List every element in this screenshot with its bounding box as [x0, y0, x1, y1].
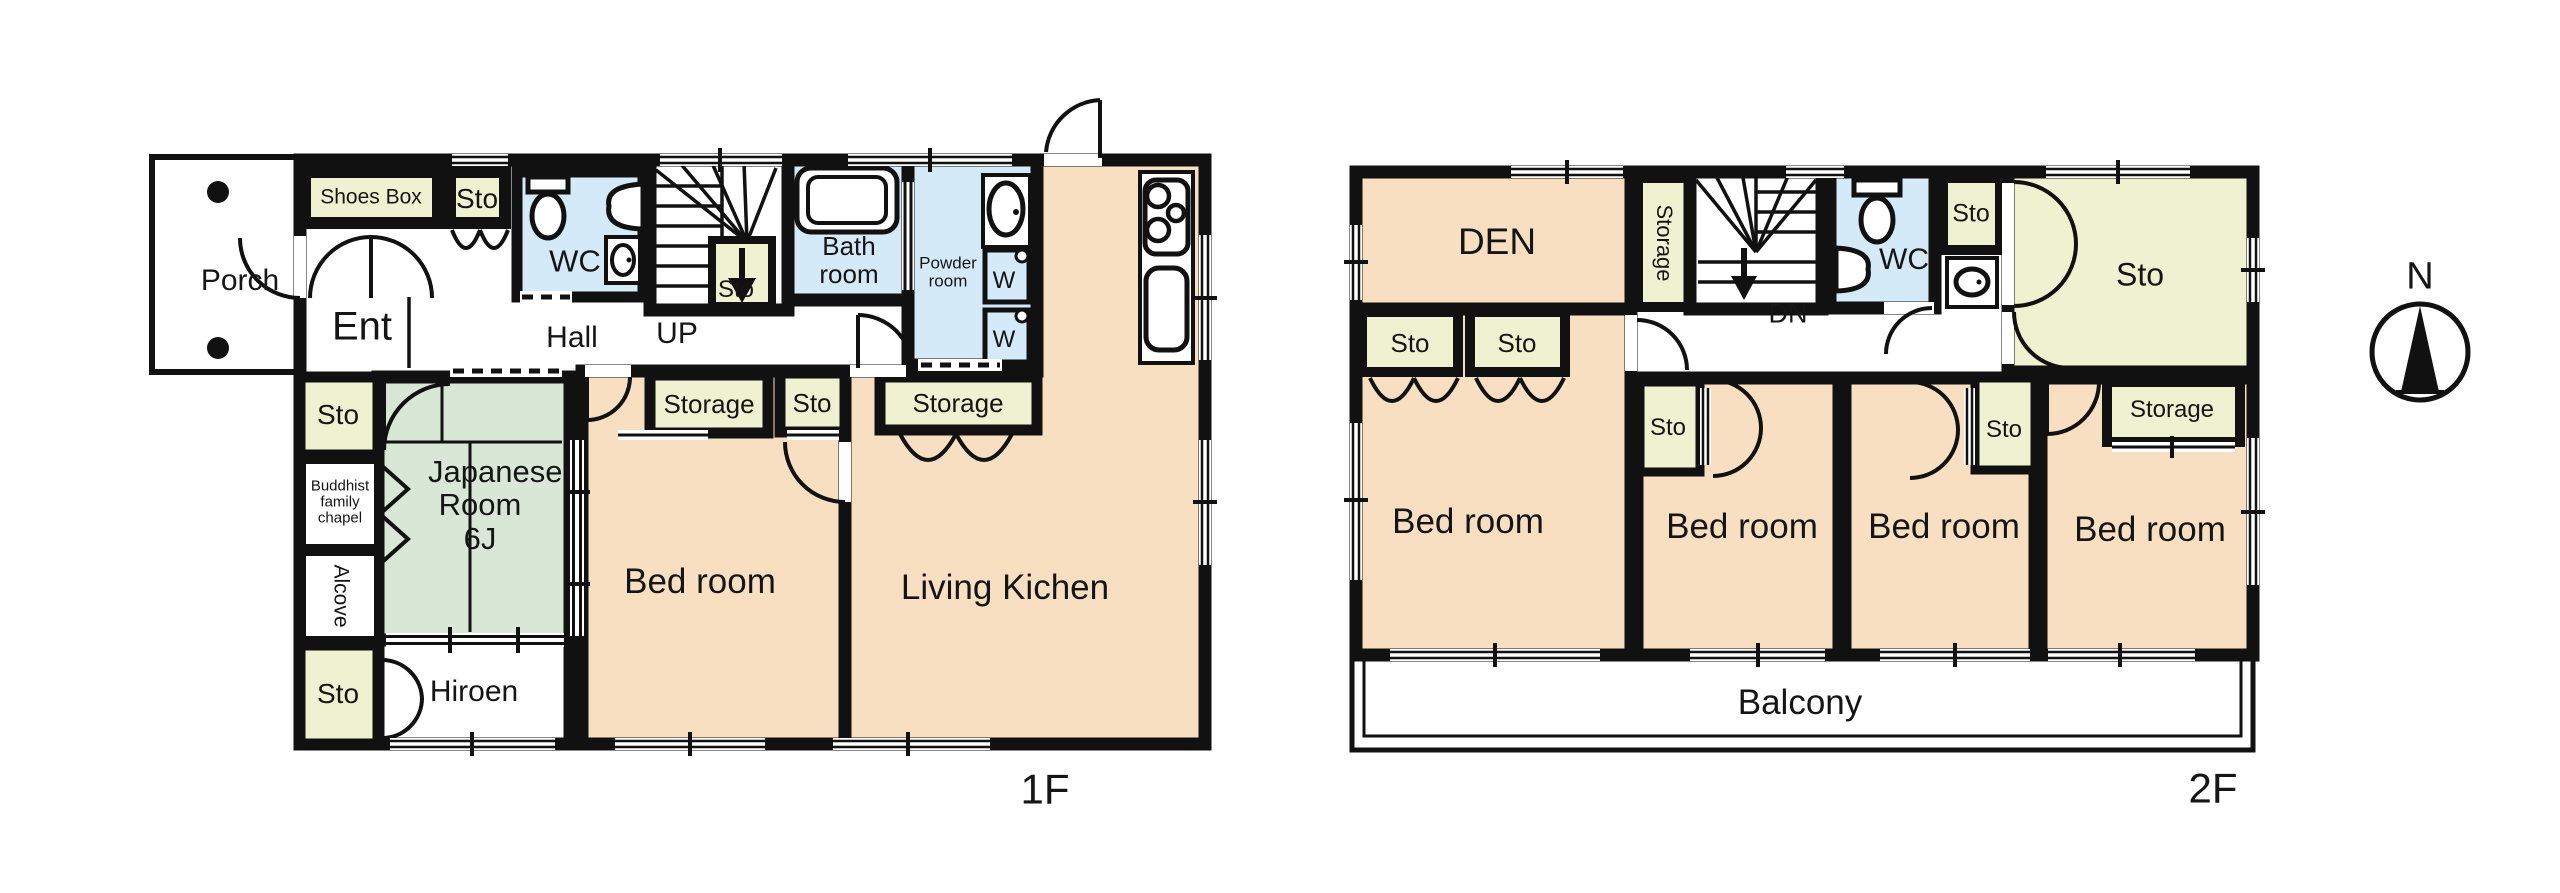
- label-chapel: Buddhist family chapel: [304, 479, 376, 528]
- label-den: DEN: [1458, 222, 1536, 262]
- label-storage-stairs: Storage: [1652, 204, 1676, 281]
- label-porch: Porch: [201, 265, 279, 297]
- label-bed3: Bed room: [1868, 508, 2020, 546]
- kitchen-sink-icon: [1146, 268, 1187, 350]
- label-hiroen: Hiroen: [430, 676, 518, 708]
- label-floor-2f: 2F: [2188, 765, 2237, 810]
- label-sto-den-2: Sto: [1497, 329, 1536, 357]
- label-balcony: Balcony: [1738, 684, 1863, 722]
- label-bed2: Bed room: [1666, 508, 1818, 546]
- label-alcove: Alcove: [329, 564, 352, 627]
- label-dn: DN: [1769, 299, 1808, 328]
- label-sto-bed3: Sto: [1986, 417, 2022, 443]
- label-compass-north: N: [2406, 256, 2433, 297]
- porch-post-dot: [207, 337, 229, 359]
- label-wc-2f: WC: [1879, 244, 1929, 276]
- label-sto-bed: Sto: [792, 389, 831, 417]
- powder-sink-icon: [983, 175, 1030, 247]
- label-sto-wc: Sto: [1952, 201, 1990, 228]
- label-bed4: Bed room: [2074, 511, 2226, 549]
- floorplan-page: Porch Shoes Box Sto Ent WC Hall UP Sto B…: [0, 0, 2560, 893]
- label-ent: Ent: [332, 305, 392, 348]
- label-sto-bed2: Sto: [1650, 415, 1686, 441]
- label-storage-living: Storage: [912, 389, 1003, 417]
- floorplan-drawing: [0, 0, 2560, 893]
- bathtub-icon: [797, 168, 897, 232]
- toilet-icon: [528, 177, 568, 238]
- label-washer-bottom: W: [993, 327, 1016, 353]
- label-japanese-room: Japanese Room 6J: [428, 455, 532, 555]
- label-sto-den-1: Sto: [1390, 329, 1429, 357]
- label-sto-chapel: Sto: [317, 400, 359, 430]
- label-hall: Hall: [546, 322, 598, 354]
- compass: [2372, 304, 2468, 400]
- label-sto-big: Sto: [2116, 258, 2164, 293]
- floor1-plan: [152, 100, 1217, 756]
- sink-box-2f: [1947, 258, 1997, 307]
- wc2-sink-icon: [1836, 248, 1868, 291]
- label-sto-hiroen: Sto: [317, 679, 359, 709]
- label-storage-bed: Storage: [663, 390, 754, 418]
- label-sto-stairs: Sto: [718, 277, 754, 303]
- label-washer-top: W: [993, 268, 1016, 294]
- compass-needle-icon: [2401, 306, 2439, 392]
- label-living-kitchen: Living Kichen: [901, 569, 1109, 607]
- kitchen-counter: [1140, 172, 1193, 363]
- label-shoes-box: Shoes Box: [320, 187, 422, 210]
- label-bedroom-1f: Bed room: [624, 563, 776, 601]
- label-sto-entry: Sto: [456, 184, 498, 214]
- label-wc-1f: WC: [549, 244, 601, 277]
- label-up: UP: [656, 318, 698, 350]
- label-floor-1f: 1F: [1020, 766, 1069, 811]
- label-bath: Bath room: [809, 232, 889, 288]
- label-powder: Powder room: [916, 255, 980, 292]
- porch-post-dot: [207, 181, 229, 203]
- label-storage-bed4: Storage: [2130, 397, 2214, 423]
- label-bed1: Bed room: [1392, 503, 1544, 541]
